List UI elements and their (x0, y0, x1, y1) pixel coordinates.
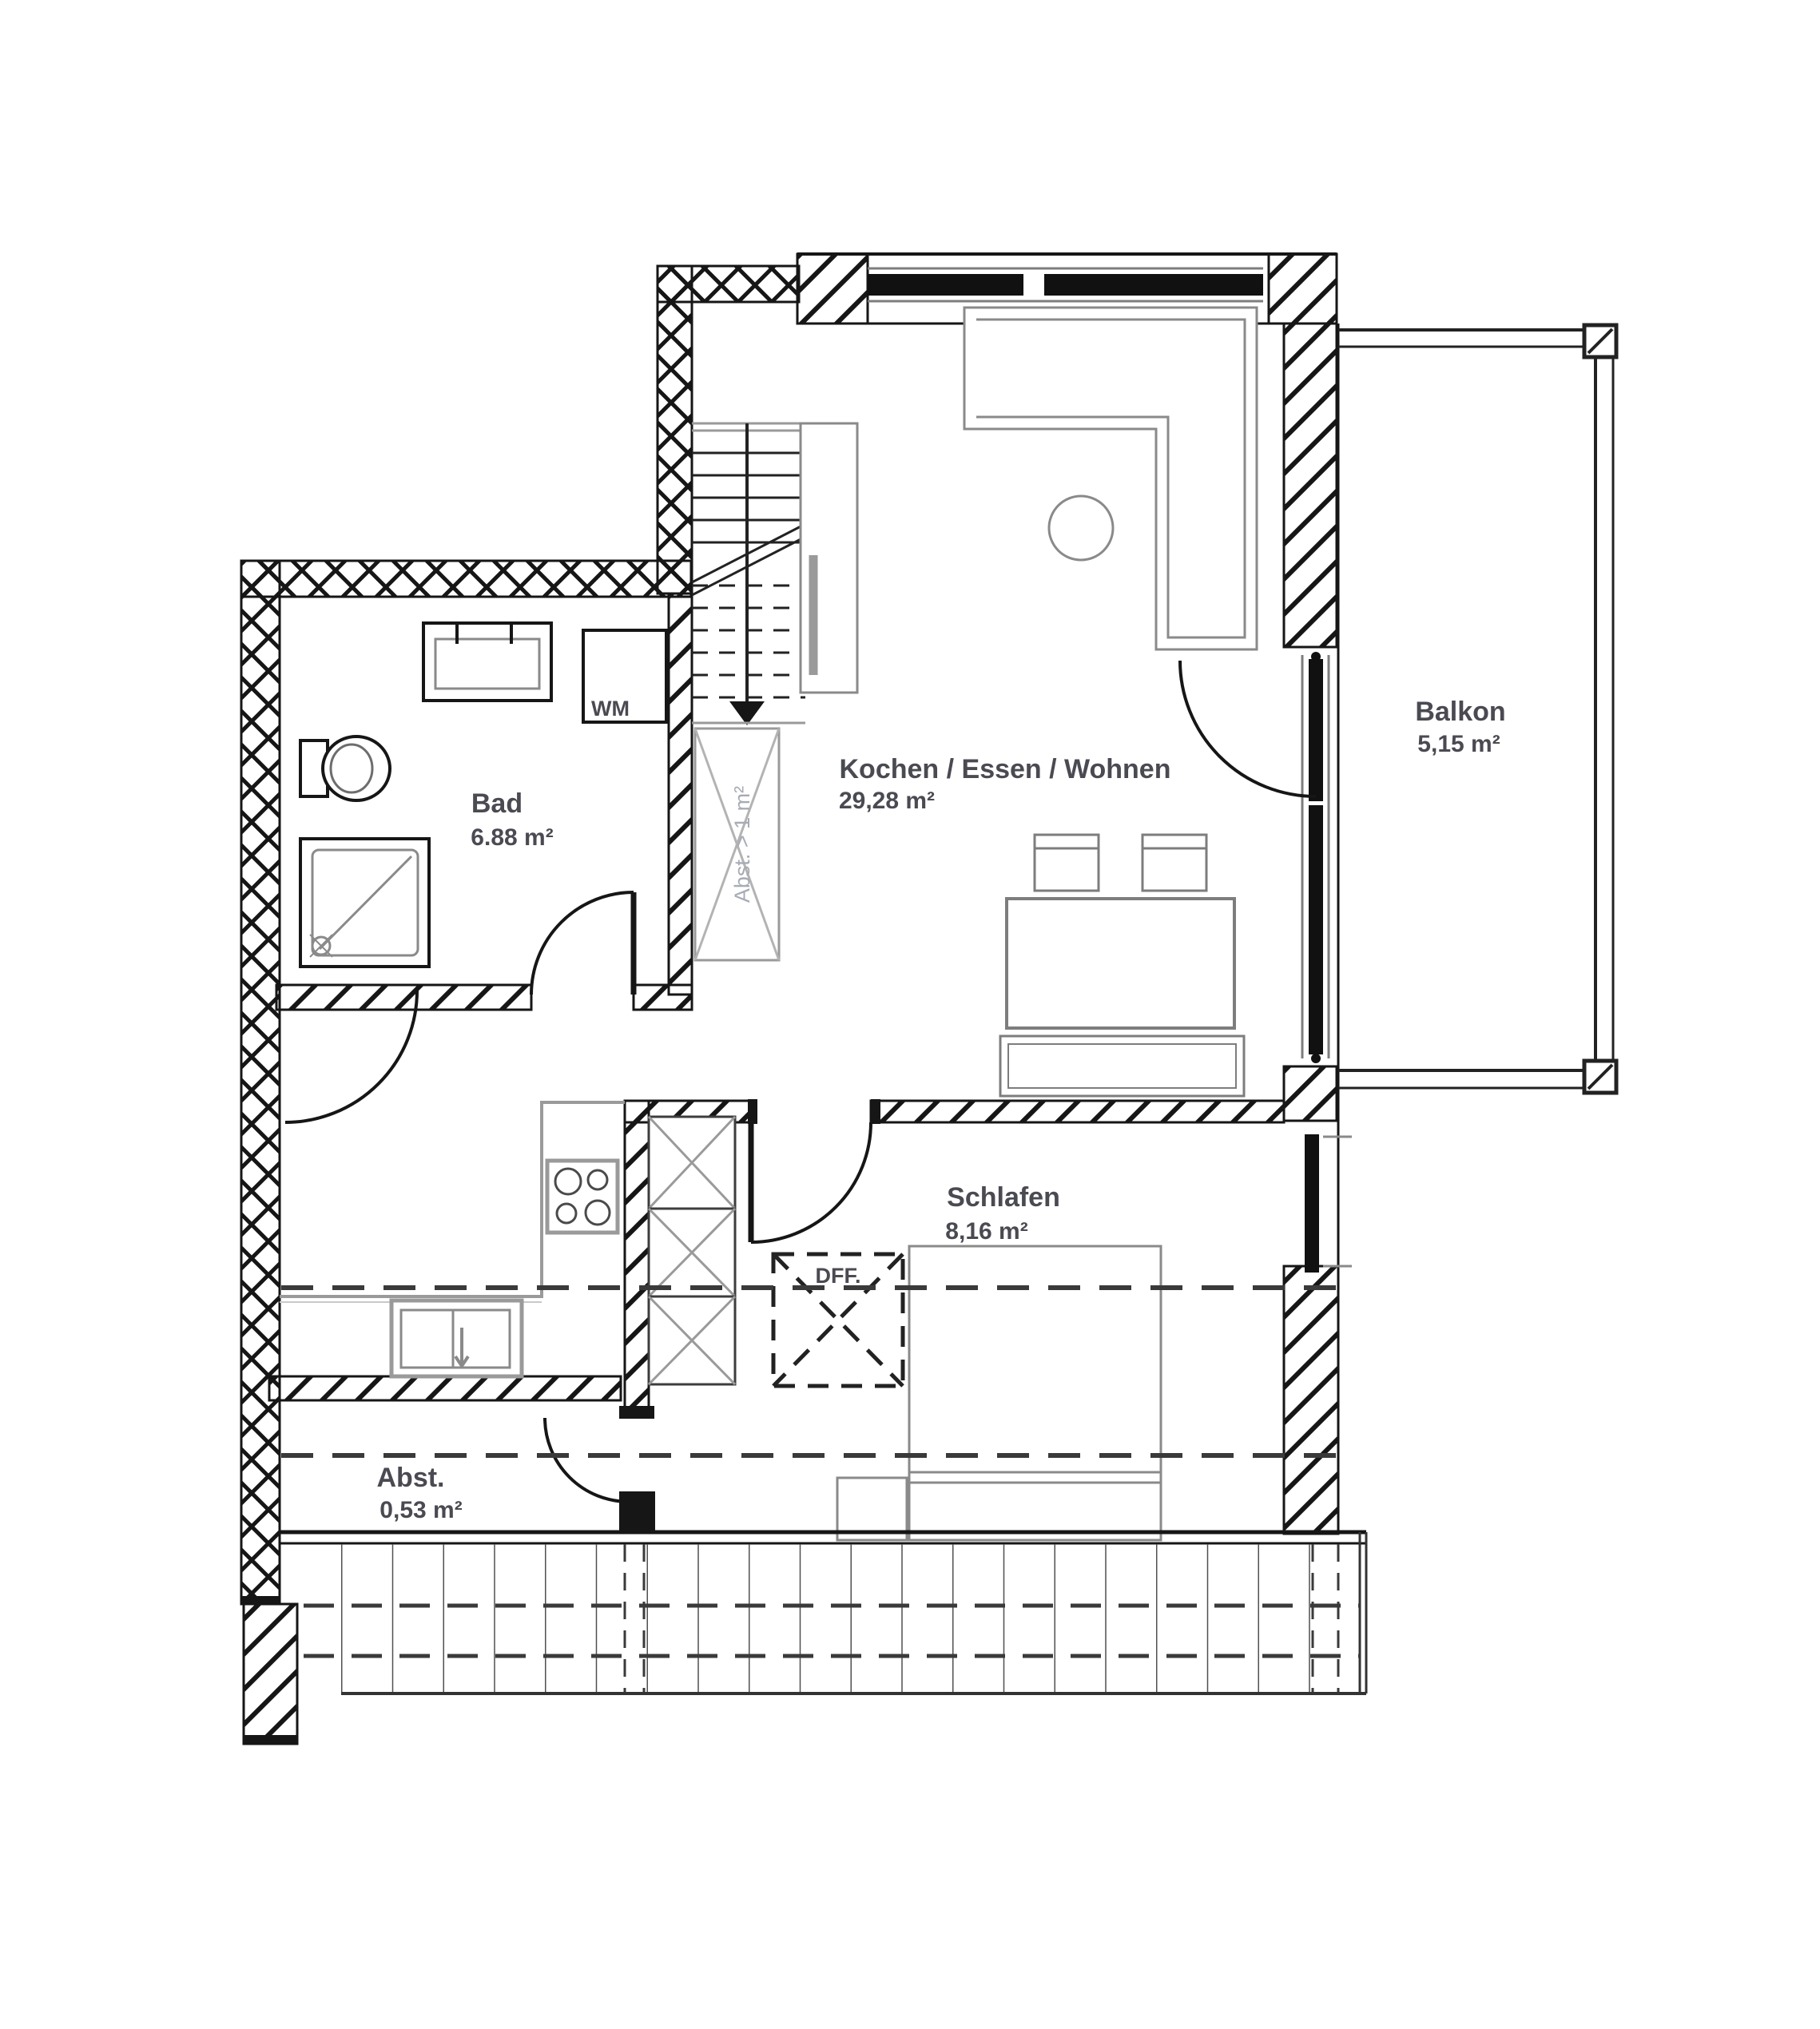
bench (1000, 1036, 1244, 1096)
balcony-door-swing (1180, 661, 1316, 796)
wall-kitchen-spine-cap (619, 1406, 654, 1419)
wall-southwest-stub (244, 1604, 297, 1744)
tall-cabinets (649, 1117, 735, 1384)
area-abst: 0,53 m² (379, 1497, 462, 1523)
wall-east-pier (1284, 1066, 1337, 1121)
wall-bath-right (669, 594, 692, 995)
label-balkon: Balkon (1415, 697, 1505, 727)
strip-planks (341, 1544, 1360, 1693)
schlafen-door-swing (751, 1122, 871, 1242)
wall-east-upper (1284, 324, 1337, 647)
wall-north-left-pier (797, 254, 868, 324)
area-schlafen: 8,16 m² (945, 1218, 1027, 1245)
wall-east-lower (1284, 1266, 1338, 1534)
wall-bath-bottom-stub (634, 985, 692, 1010)
wall-divider-east (871, 1101, 1284, 1122)
sink-unit (391, 1300, 522, 1376)
side-table (1049, 496, 1113, 560)
living-furniture (964, 308, 1257, 1096)
abst-door-post (619, 1491, 655, 1534)
floor-plan-page: Abst. > 1 m² WM (0, 0, 1820, 2029)
label-living: Kochen / Essen / Wohnen (840, 754, 1171, 784)
abst-door-swing (545, 1418, 629, 1502)
balcony-glazing-end (1311, 1054, 1321, 1063)
bath-door-swing (531, 892, 634, 995)
area-living: 29,28 m² (839, 788, 935, 814)
wall-divider-west-cap (748, 1099, 757, 1124)
label-schlafen: Schlafen (947, 1182, 1060, 1213)
wall-southwest-stub-cap (244, 1735, 297, 1745)
wall-west (241, 561, 280, 1604)
washing-machine-label: WM (591, 697, 630, 721)
dining-set (1000, 835, 1244, 1096)
wall-bath-bottom (276, 985, 531, 1010)
balcony-door-leaf (1309, 659, 1323, 801)
chair-1 (1035, 835, 1099, 891)
label-abst: Abst. (377, 1463, 445, 1493)
label-dff: DFF. (816, 1264, 861, 1288)
wall-bath-top (241, 561, 691, 597)
kitchen (280, 1102, 735, 1384)
roof-edge-strip (280, 1532, 1366, 1693)
wall-stairhall-left (658, 266, 692, 594)
stairs (692, 423, 857, 725)
knee-wall-void-label: Abst. > 1 m² (730, 786, 754, 903)
chair-2 (1142, 835, 1206, 891)
wall-north-right-pier (1269, 254, 1337, 324)
north-window-sash-right (1044, 274, 1263, 296)
schlafen-window (1305, 1134, 1319, 1273)
area-bad: 6.88 m² (471, 824, 553, 851)
floor-plan-drawing: Abst. > 1 m² WM (0, 0, 1820, 2029)
balcony-fixed-glazing (1309, 805, 1323, 1054)
north-window-sash-left (868, 274, 1023, 296)
bed (909, 1246, 1161, 1540)
label-bad: Bad (471, 788, 523, 819)
wall-kitchen-spine (625, 1101, 649, 1408)
knee-wall-void: Abst. > 1 m² (695, 729, 779, 960)
dining-table (1007, 899, 1234, 1028)
wall-kitchen-bottom (269, 1376, 621, 1400)
schlafen-furniture (837, 1246, 1161, 1540)
balcony-door-hinge (1311, 652, 1321, 661)
area-balkon: 5,15 m² (1417, 731, 1500, 757)
sofa (964, 308, 1257, 649)
wall-divider-east-cap (871, 1099, 880, 1124)
